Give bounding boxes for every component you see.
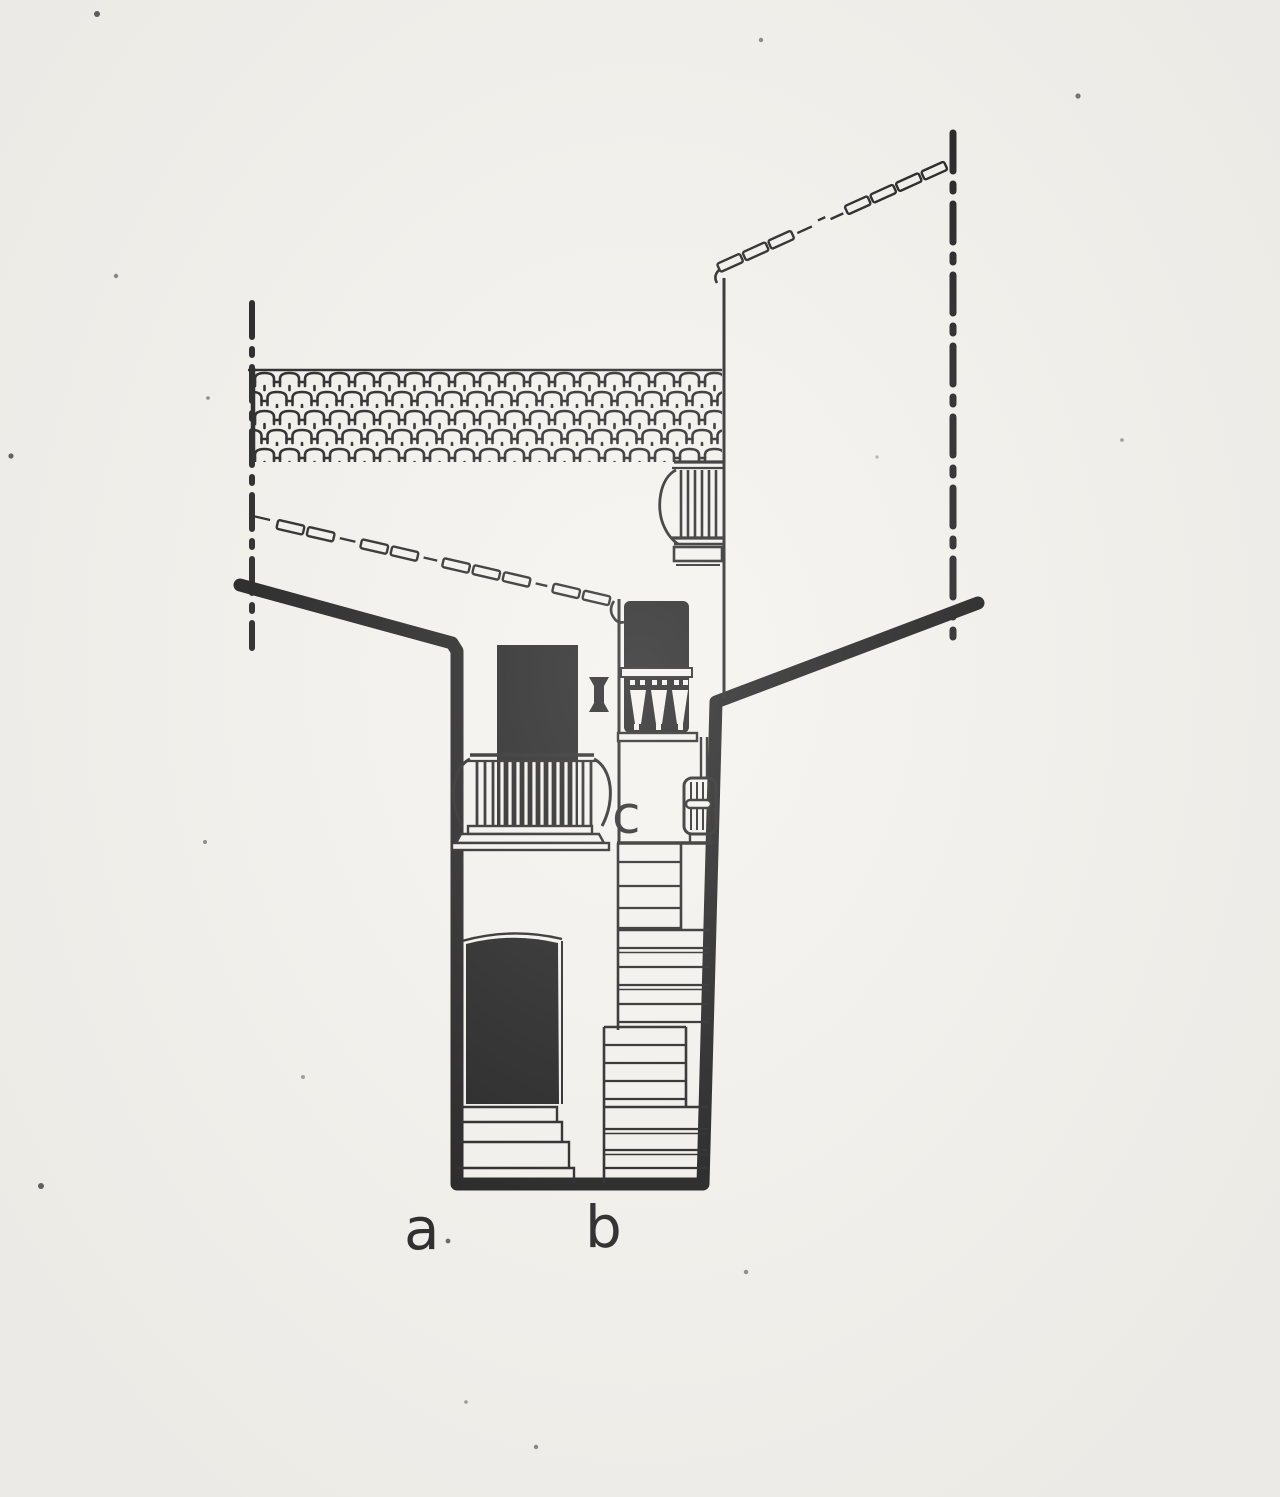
window-upper-right	[618, 601, 697, 741]
wall-outline	[240, 585, 978, 1184]
section-elevation-drawing	[0, 0, 1280, 1497]
entrance-door	[462, 933, 562, 1104]
staircase	[604, 843, 713, 1184]
wall-bracket	[589, 677, 609, 712]
label-b: b	[585, 1198, 622, 1256]
roof-tile-band	[248, 368, 722, 462]
ridge-course-left	[251, 514, 611, 605]
scanned-drawing-page: a b c	[0, 0, 1280, 1497]
label-a: a	[404, 1200, 440, 1258]
balcony-top-right	[660, 462, 724, 565]
ridge-course-right	[717, 161, 948, 272]
entrance-steps	[457, 1107, 574, 1184]
label-c: c	[612, 790, 641, 842]
